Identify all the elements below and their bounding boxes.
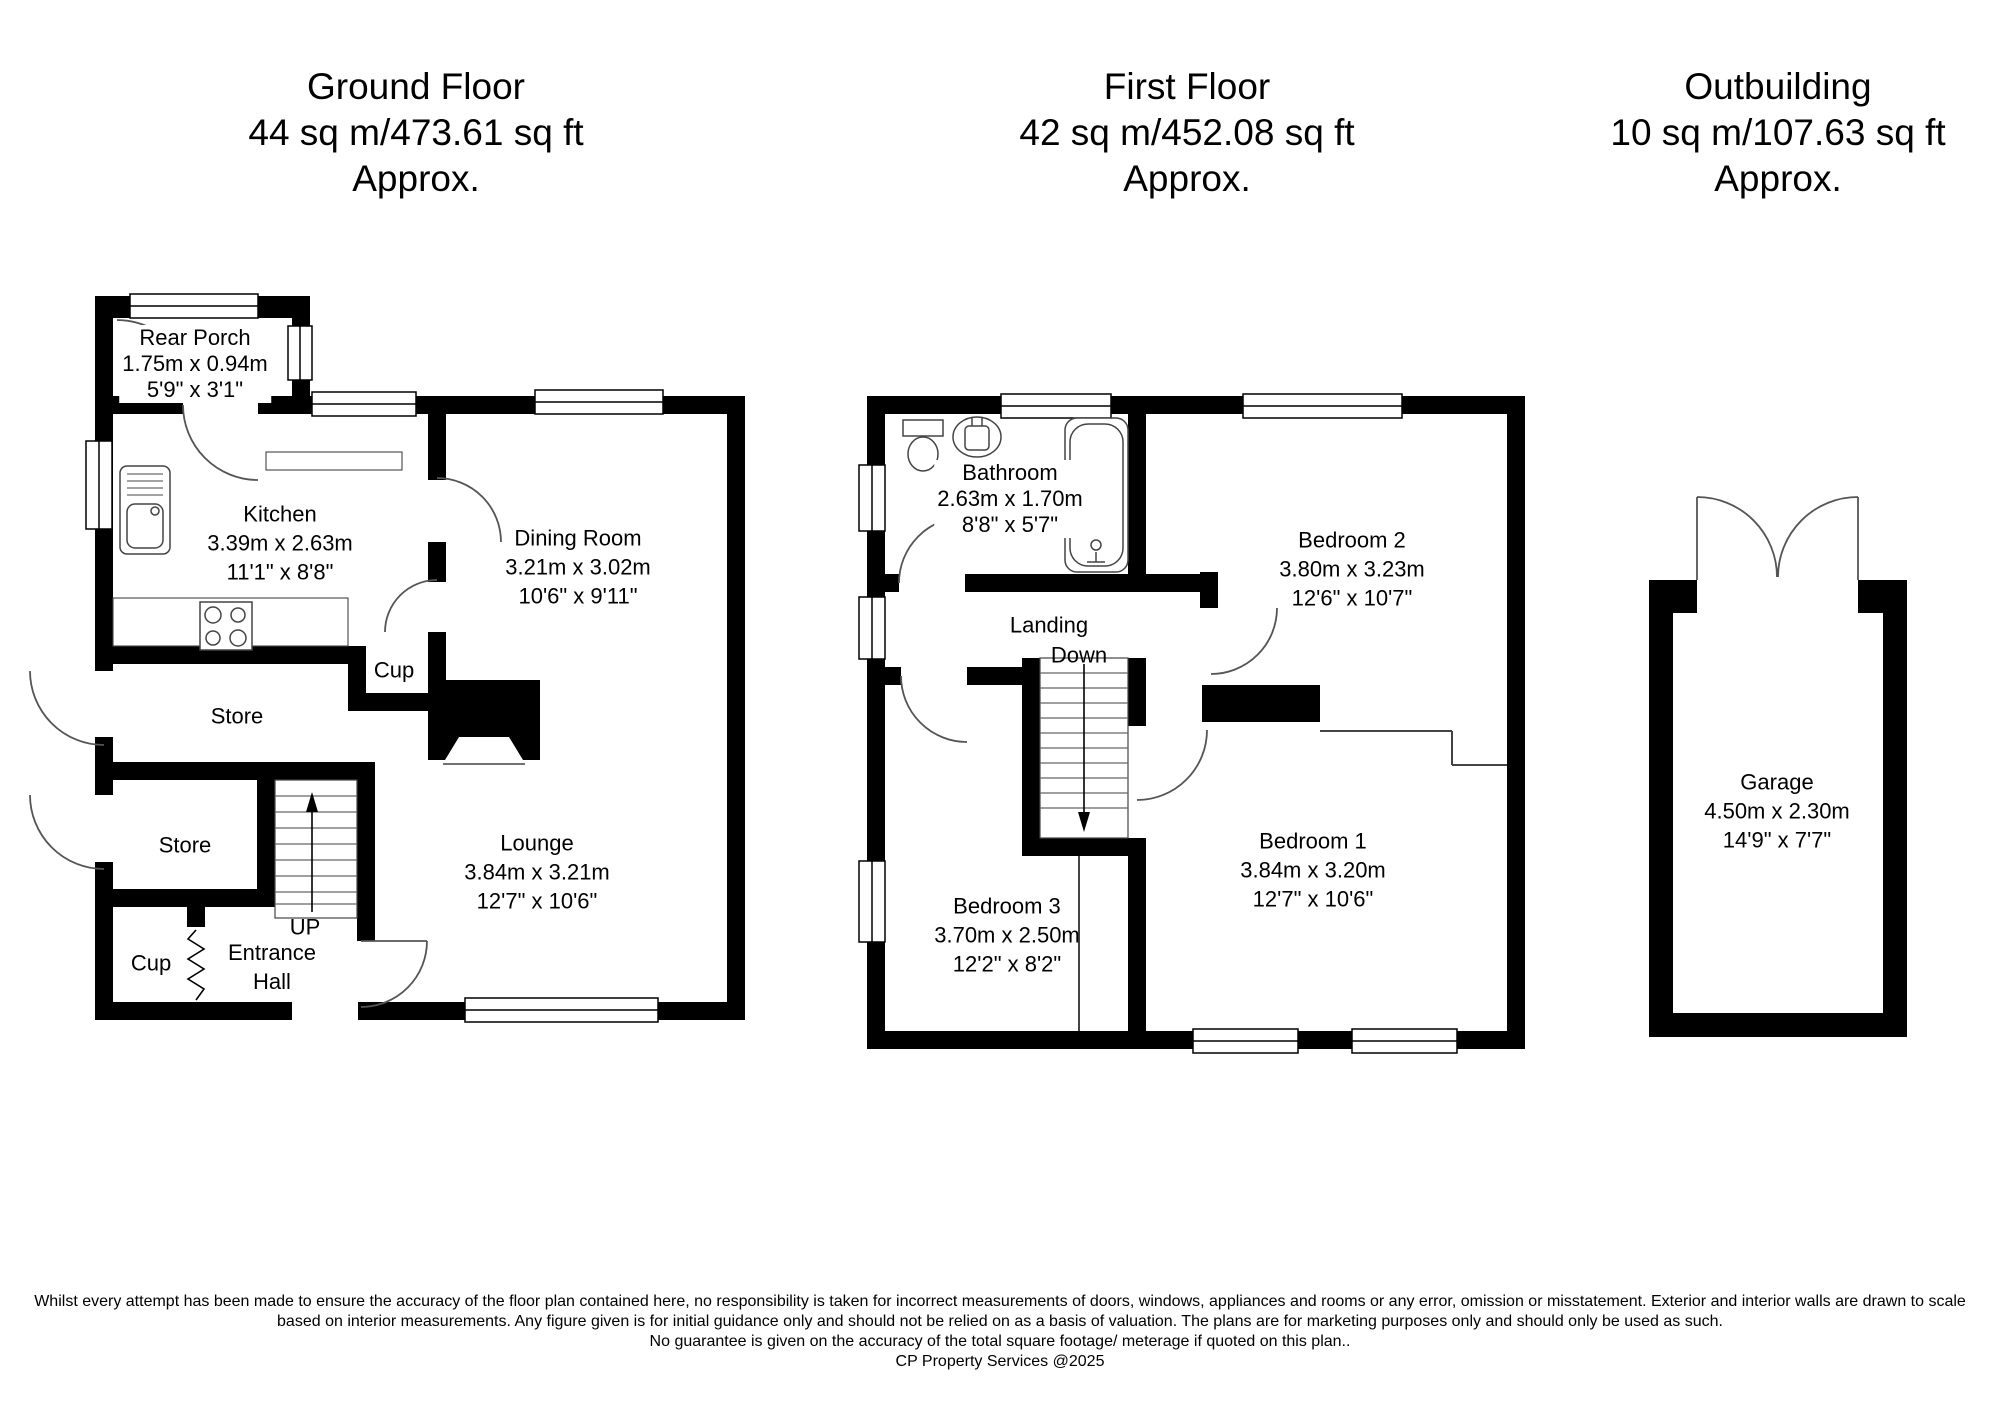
floorplan-page: Ground Floor 44 sq m/473.61 sq ft Approx…	[0, 0, 2000, 1414]
disclaimer: Whilst every attempt has been made to en…	[10, 1292, 1990, 1372]
room-label-entrance-hall: Entrance Hall	[228, 938, 316, 996]
room-imperial: 12'7" x 10'6"	[1240, 885, 1386, 914]
room-name: Cup	[374, 656, 414, 685]
room-label-cup-upper: Cup	[374, 656, 414, 685]
room-name: Landing	[1010, 611, 1088, 640]
room-label-rear-porch: Rear Porch 1.75m x 0.94m 5'9" x 3'1"	[119, 325, 271, 403]
down-arrow-head	[1078, 812, 1090, 832]
room-label-store-1: Store	[211, 702, 264, 731]
stairs-down-label: Down	[1051, 641, 1107, 670]
bedroom1-door	[1137, 730, 1207, 800]
kitchen-dining-door	[437, 478, 501, 542]
room-name: Down	[1051, 641, 1107, 670]
hob-icon	[200, 602, 252, 650]
room-name: Rear Porch	[122, 325, 268, 351]
room-label-bathroom: Bathroom 2.63m x 1.70m 8'8" x 5'7"	[934, 460, 1086, 538]
disclaimer-line-1: Whilst every attempt has been made to en…	[10, 1292, 1990, 1312]
up-arrow-head	[306, 792, 318, 812]
room-imperial: 12'7" x 10'6"	[464, 887, 610, 916]
zigzag-symbol	[188, 930, 204, 1000]
floor-approx: Approx.	[248, 156, 583, 202]
room-label-lounge: Lounge 3.84m x 3.21m 12'7" x 10'6"	[464, 829, 610, 916]
room-label-garage: Garage 4.50m x 2.30m 14'9" x 7'7"	[1704, 768, 1850, 855]
room-name: Bedroom 1	[1240, 827, 1386, 856]
room-name: Dining Room	[505, 524, 651, 553]
room-metric: 3.84m x 3.20m	[1240, 856, 1386, 885]
room-metric: 3.84m x 3.21m	[464, 858, 610, 887]
front-door	[361, 941, 427, 1007]
room-label-store-2: Store	[159, 831, 212, 860]
bedroom2-door	[1211, 608, 1277, 674]
stairs-up	[275, 780, 357, 918]
floorplan-drawing	[0, 0, 2000, 1414]
floor-area: 44 sq m/473.61 sq ft	[248, 110, 583, 156]
room-label-bedroom-1: Bedroom 1 3.84m x 3.20m 12'7" x 10'6"	[1240, 827, 1386, 914]
room-name: Cup	[131, 949, 171, 978]
room-name: Kitchen	[207, 500, 353, 529]
room-label-dining-room: Dining Room 3.21m x 3.02m 10'6" x 9'11"	[505, 524, 651, 611]
porch-kitchen-door	[183, 405, 258, 480]
room-metric: 4.50m x 2.30m	[1704, 797, 1850, 826]
first-floor-title: First Floor 42 sq m/452.08 sq ft Approx.	[1019, 64, 1354, 202]
room-metric: 3.80m x 3.23m	[1279, 555, 1425, 584]
floor-name: Outbuilding	[1610, 64, 1945, 110]
store2-door	[30, 795, 104, 869]
dining-cup-door	[385, 580, 437, 632]
room-label-bedroom-3: Bedroom 3 3.70m x 2.50m 12'2" x 8'2"	[934, 892, 1080, 979]
room-name: Store	[159, 831, 212, 860]
room-imperial: 11'1" x 8'8"	[207, 558, 353, 587]
fireplace-chimney	[428, 680, 540, 764]
disclaimer-line-3: No guarantee is given on the accuracy of…	[10, 1332, 1990, 1352]
room-name: Garage	[1704, 768, 1850, 797]
room-metric: 3.21m x 3.02m	[505, 553, 651, 582]
basin-icon	[953, 417, 1001, 457]
room-name: Entrance	[228, 938, 316, 967]
room-metric: 3.39m x 2.63m	[207, 529, 353, 558]
room-name: Store	[211, 702, 264, 731]
disclaimer-line-2: based on interior measurements. Any figu…	[10, 1312, 1990, 1332]
store1-door	[30, 671, 104, 745]
room-imperial: 5'9" x 3'1"	[122, 377, 268, 403]
room-label-cup-lower: Cup	[131, 949, 171, 978]
room-metric: 1.75m x 0.94m	[122, 351, 268, 377]
room-name: Bedroom 3	[934, 892, 1080, 921]
counter-top	[266, 452, 402, 470]
room-name: Lounge	[464, 829, 610, 858]
room-metric: 3.70m x 2.50m	[934, 921, 1080, 950]
copyright-line: CP Property Services @2025	[10, 1352, 1990, 1372]
room-metric: 2.63m x 1.70m	[937, 486, 1083, 512]
stairs-down	[1040, 658, 1128, 838]
room-imperial: 12'2" x 8'2"	[934, 950, 1080, 979]
floor-approx: Approx.	[1019, 156, 1354, 202]
room-label-landing: Landing	[1010, 611, 1088, 640]
room-imperial: 14'9" x 7'7"	[1704, 826, 1850, 855]
sink-icon	[120, 466, 170, 554]
ground-floor-title: Ground Floor 44 sq m/473.61 sq ft Approx…	[248, 64, 583, 202]
floor-area: 10 sq m/107.63 sq ft	[1610, 110, 1945, 156]
floor-approx: Approx.	[1610, 156, 1945, 202]
room-imperial: 10'6" x 9'11"	[505, 582, 651, 611]
room-imperial: 8'8" x 5'7"	[937, 512, 1083, 538]
floor-name: First Floor	[1019, 64, 1354, 110]
room-name: Bedroom 2	[1279, 526, 1425, 555]
floor-name: Ground Floor	[248, 64, 583, 110]
room-imperial: 12'6" x 10'7"	[1279, 584, 1425, 613]
room-label-kitchen: Kitchen 3.39m x 2.63m 11'1" x 8'8"	[207, 500, 353, 587]
garage-double-doors	[1697, 497, 1858, 580]
room-name: Hall	[228, 967, 316, 996]
outbuilding-title: Outbuilding 10 sq m/107.63 sq ft Approx.	[1610, 64, 1945, 202]
room-name: Bathroom	[937, 460, 1083, 486]
room-label-bedroom-2: Bedroom 2 3.80m x 3.23m 12'6" x 10'7"	[1279, 526, 1425, 613]
bedroom3-door	[901, 676, 967, 742]
floor-area: 42 sq m/452.08 sq ft	[1019, 110, 1354, 156]
